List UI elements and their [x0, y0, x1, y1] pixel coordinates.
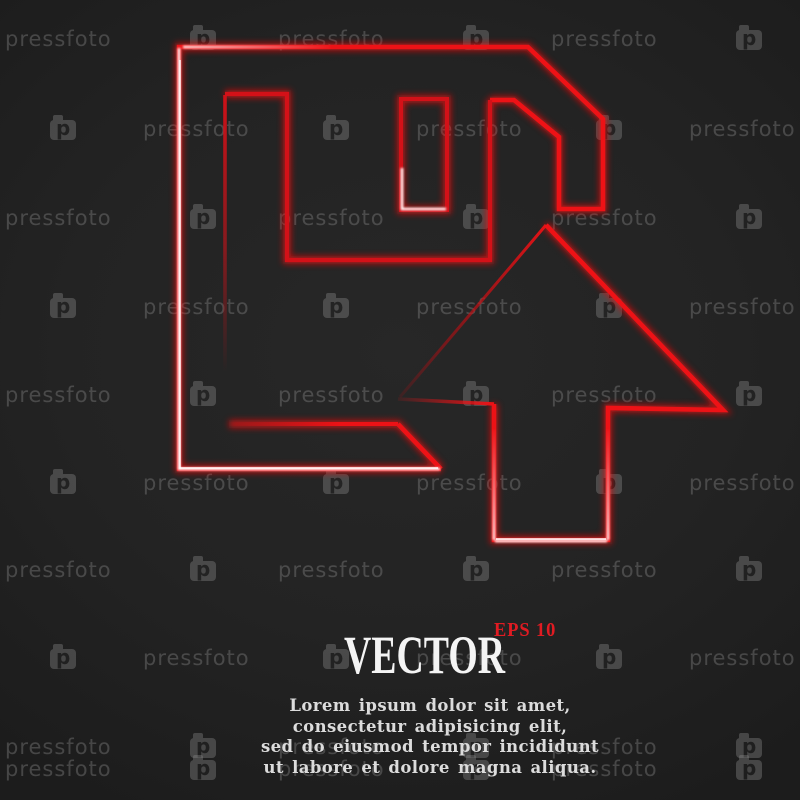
- hot-window-bottom: [402, 168, 446, 209]
- icon-glow-layer: [179, 47, 723, 540]
- floppy-window-path: [401, 99, 447, 210]
- floppy-window-glow: [401, 99, 447, 210]
- lorem-line: Lorem ipsum dolor sit amet,: [205, 696, 655, 717]
- floppy-label-glow: [229, 424, 441, 469]
- floppy-label-diagonal: [398, 424, 441, 469]
- arrow-underside-left: [398, 399, 494, 404]
- lorem-paragraph: Lorem ipsum dolor sit amet, consectetur …: [205, 696, 655, 778]
- format-label: EPS 10: [494, 619, 556, 642]
- lorem-line: sed do eiusmod tempor incididunt: [205, 737, 655, 758]
- lorem-line: ut labore et dolore magna aliqua.: [205, 758, 655, 779]
- arrow-left-diagonal: [400, 225, 546, 397]
- stock-image-canvas: pressfotopressfotopressfotoppppressfotop…: [0, 0, 800, 800]
- lorem-line: consectetur adipisicing elit,: [205, 717, 655, 738]
- title-text: VECTOR: [344, 628, 505, 682]
